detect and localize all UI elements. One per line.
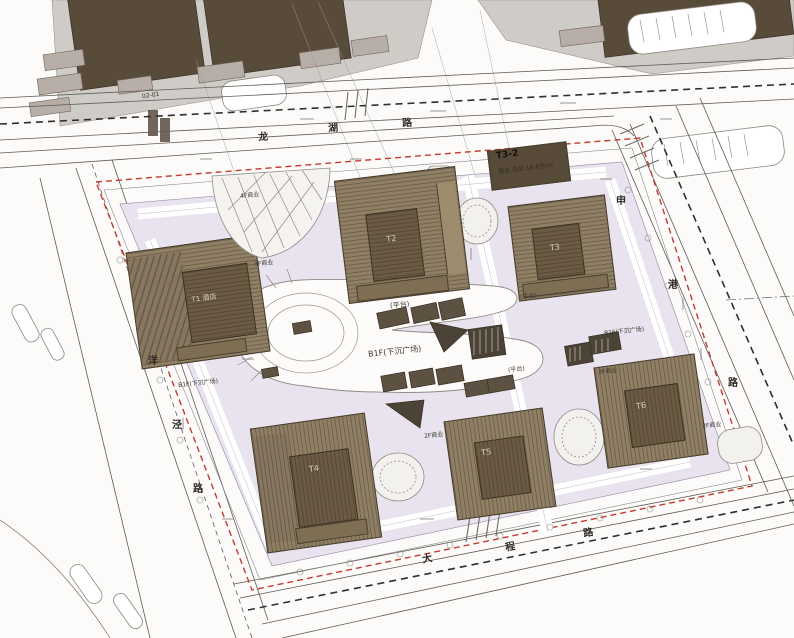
annotation-platform-2: (平台) [520, 290, 538, 301]
left-road-char-3: 路 [193, 480, 203, 495]
right-road-char-3: 路 [728, 374, 738, 389]
t6-label: T6 [636, 402, 647, 412]
t5-roof-core [474, 435, 532, 499]
right-road-char-1: 申 [616, 192, 626, 207]
left-road-char-1: 洋 [148, 352, 158, 367]
building-t4: T4 [250, 413, 382, 554]
t4-label: T4 [309, 464, 320, 474]
plan-linework [0, 0, 794, 638]
t4-roof-core [289, 448, 358, 528]
building-t1: T1 酒店 [125, 235, 270, 370]
annotation-platform-3: (平台) [508, 363, 526, 374]
t2-roof-core [365, 208, 425, 282]
t2-label: T2 [386, 235, 397, 245]
building-t2: T2 [334, 166, 470, 304]
top-road-char-2: 湖 [327, 119, 338, 135]
top-road-char-3: 路 [401, 114, 412, 130]
building-t5: T5 [444, 408, 557, 521]
t5-label: T5 [481, 448, 492, 458]
right-road-char-2: 港 [668, 276, 678, 291]
traffic-islands [0, 302, 145, 638]
top-road-char-1: 龙 [257, 128, 268, 144]
t6-roof-core [624, 383, 686, 448]
t3-label: T3 [549, 243, 560, 253]
left-road-char-2: 泾 [172, 416, 182, 431]
annotation-platform-1: (平台) [390, 299, 410, 311]
site-plan: T3-2 商业 办公 18.6万m² T1 酒店 T2 T3 T4 T5 T6 [0, 0, 794, 638]
building-t3: T3 [508, 194, 617, 301]
